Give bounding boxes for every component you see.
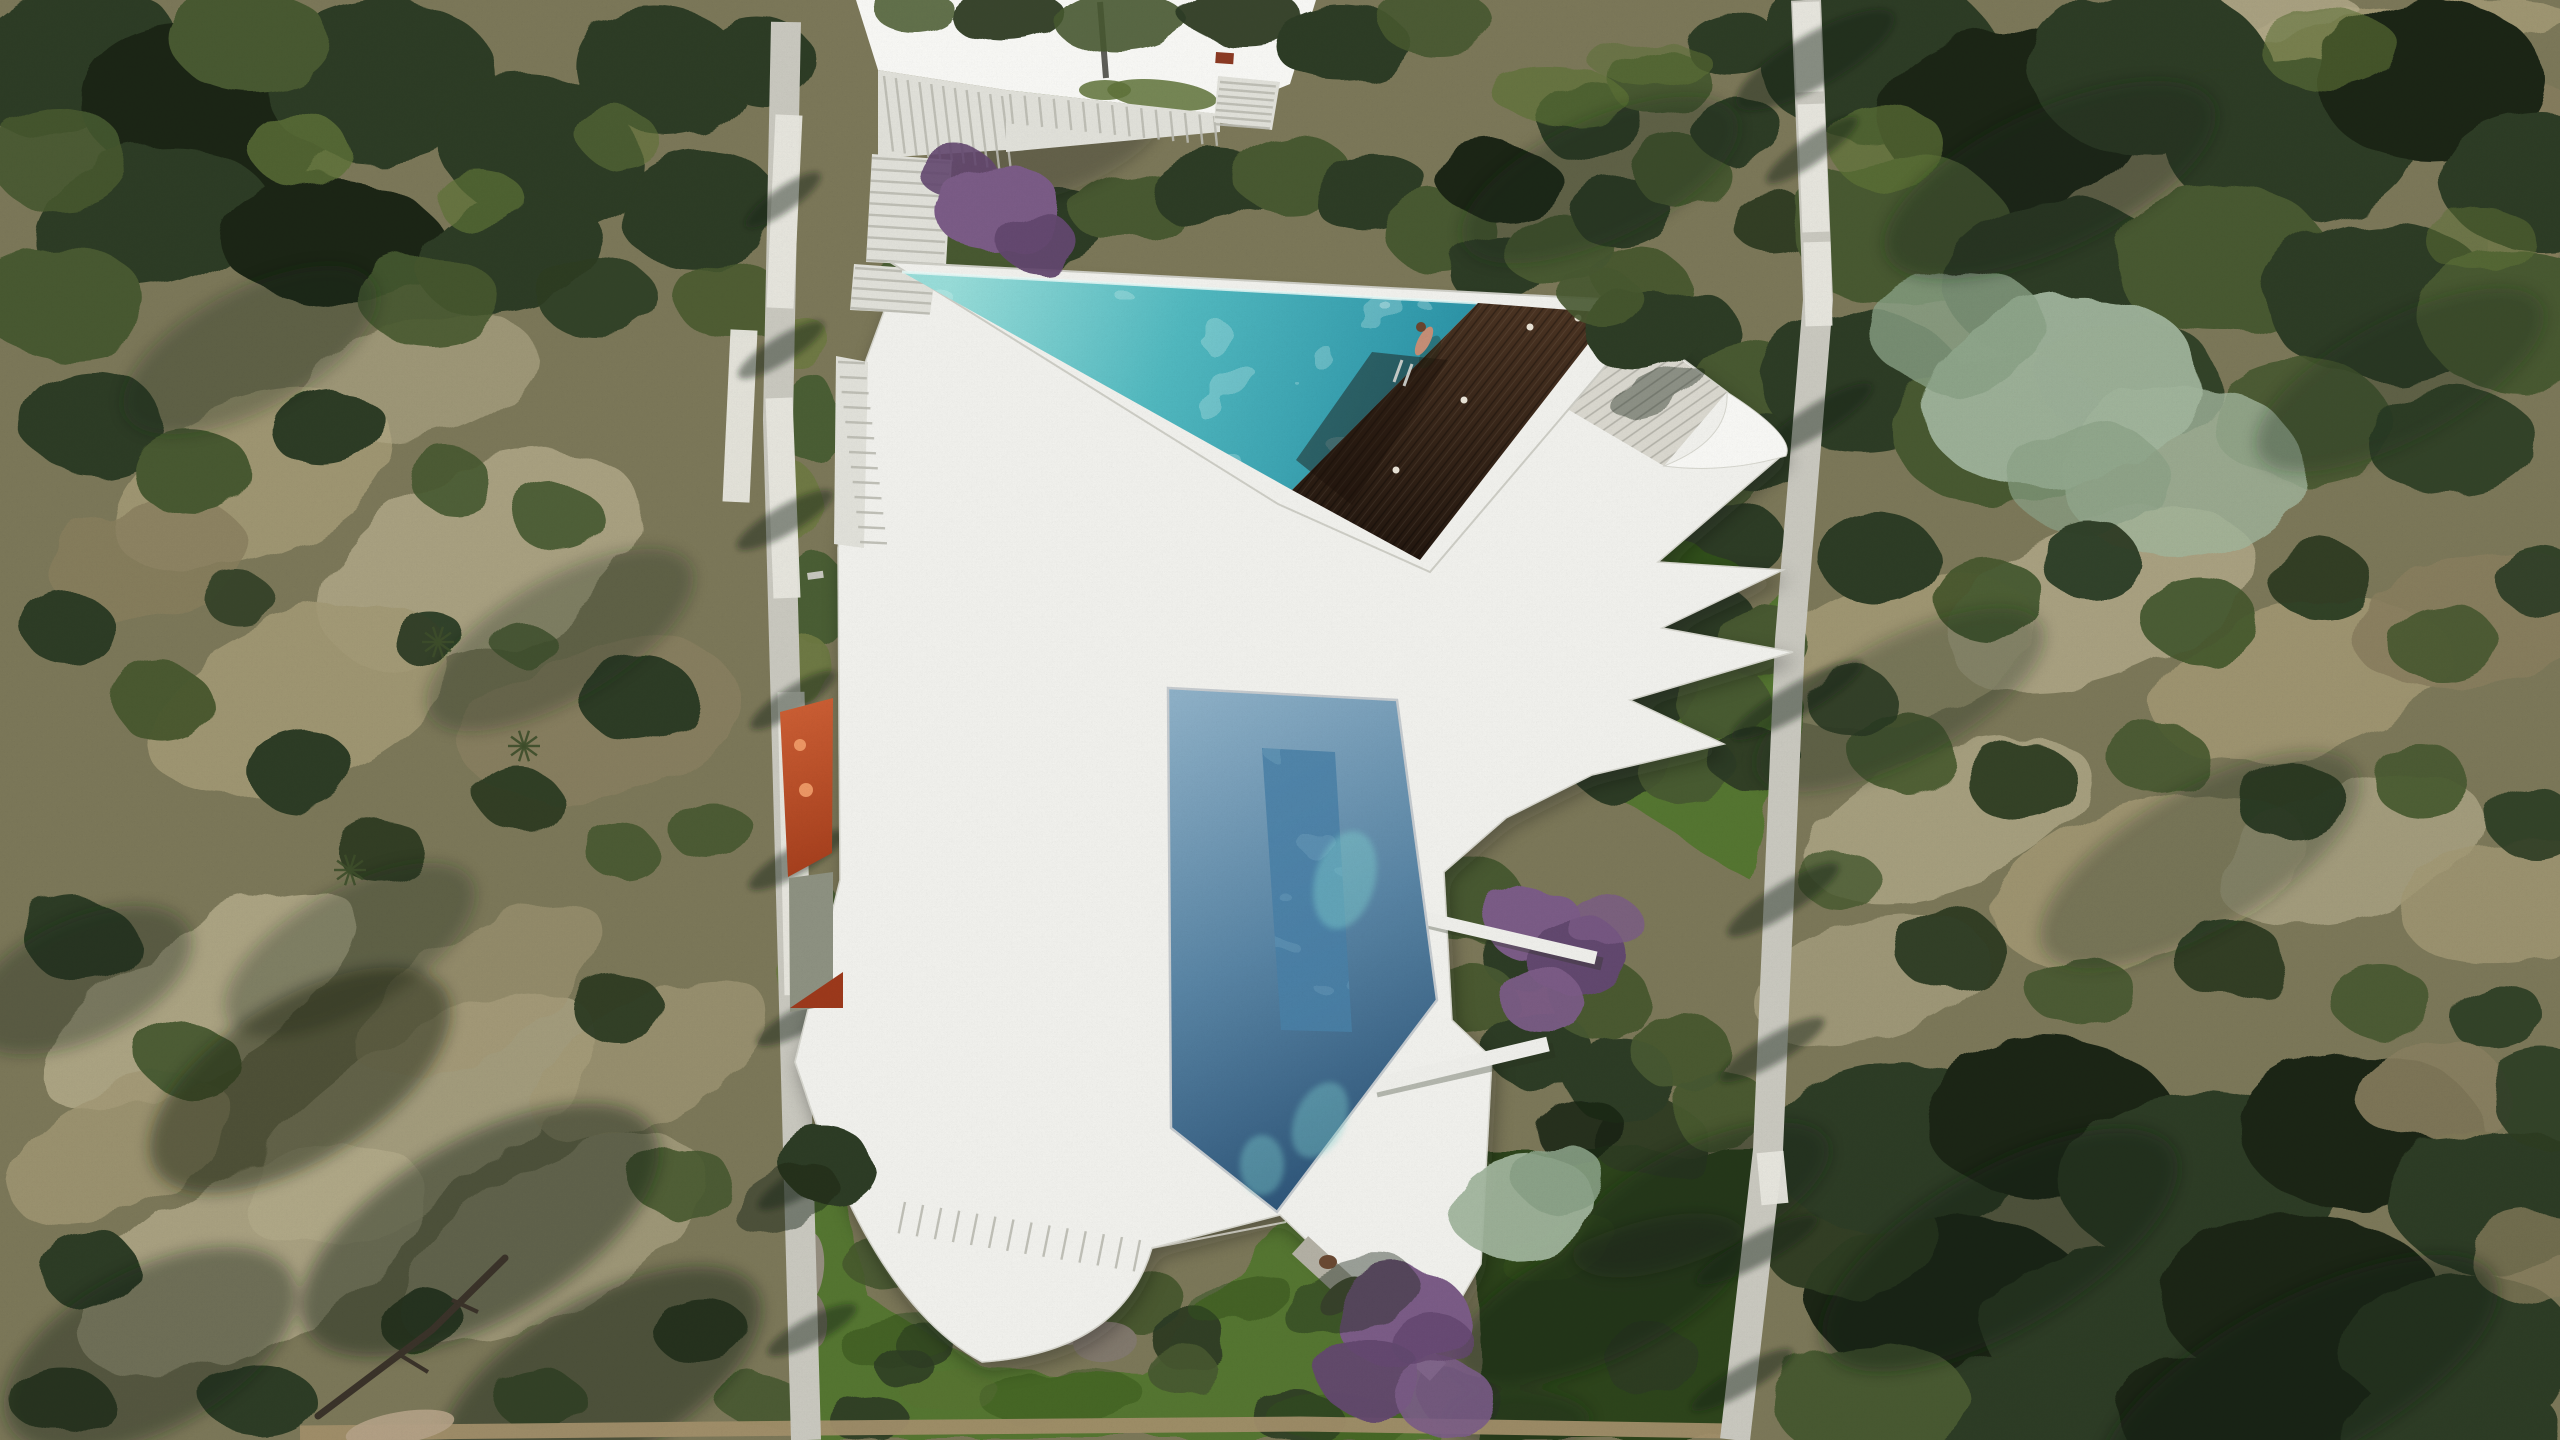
aerial-photo-container — [0, 0, 2560, 1440]
aerial-photo — [0, 0, 2560, 1440]
photo-grain — [0, 0, 2560, 1440]
